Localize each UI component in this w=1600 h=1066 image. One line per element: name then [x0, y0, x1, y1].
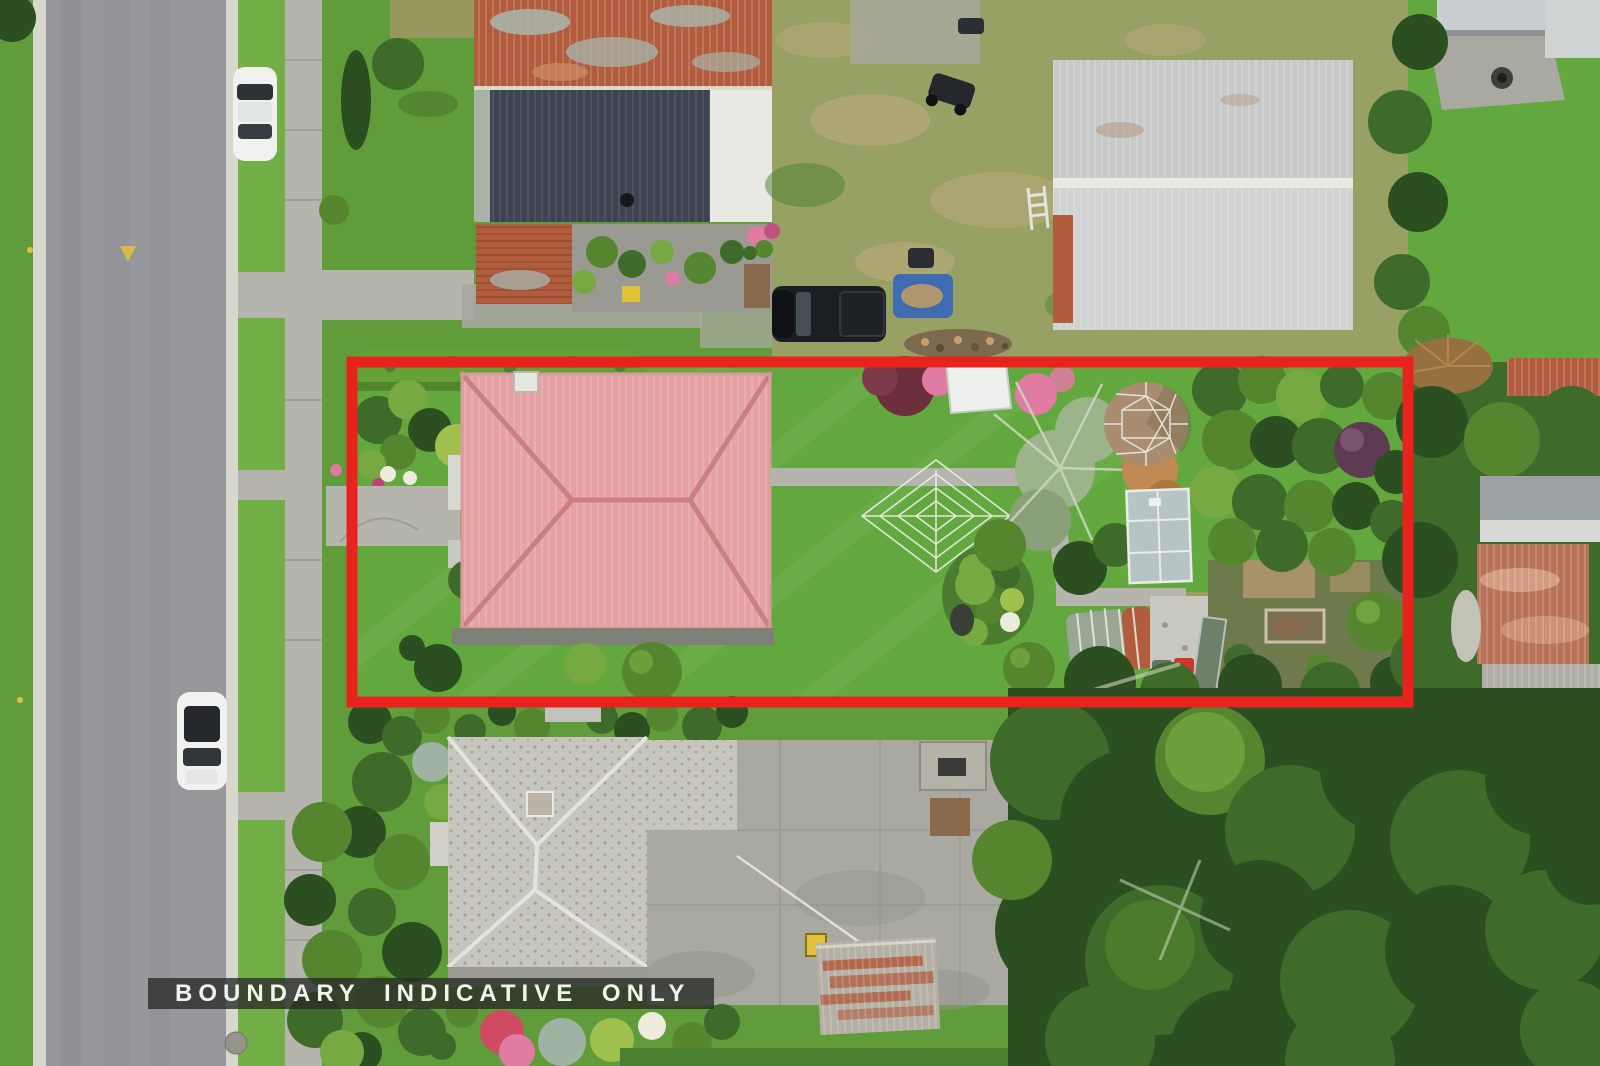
tree	[1368, 90, 1432, 154]
red-wall-strip	[1053, 215, 1073, 323]
right-kerb	[226, 0, 238, 1066]
courtyard	[572, 224, 772, 312]
glasshouse	[1126, 489, 1191, 583]
subject-house-red-roof	[452, 372, 774, 645]
pink-planter	[666, 272, 679, 285]
parked-car-middle	[177, 692, 227, 790]
black-pickup-truck	[772, 286, 886, 342]
bush	[564, 643, 606, 685]
white-roof-section	[710, 90, 772, 222]
house-edging	[452, 628, 774, 645]
tree	[1464, 402, 1540, 478]
tree	[372, 38, 424, 90]
round-bush	[1003, 642, 1055, 694]
bush	[399, 635, 425, 661]
porch	[430, 822, 448, 866]
tree	[1390, 628, 1458, 696]
rock	[950, 604, 974, 636]
tree-shadow	[398, 91, 458, 117]
flower	[330, 464, 342, 476]
wall-edge	[474, 90, 490, 222]
parked-car-top	[233, 67, 277, 161]
rust-stain	[1220, 94, 1260, 106]
boundary-banner-text: BOUNDARY INDICATIVE ONLY	[175, 980, 690, 1008]
front-paving	[326, 486, 460, 546]
right-neighbour-yard	[1368, 0, 1600, 380]
robot-mower	[908, 248, 934, 268]
firewood-pile	[904, 329, 1012, 359]
tree	[1388, 172, 1448, 232]
building-wall	[1545, 0, 1600, 58]
driveway-crossing-top	[238, 272, 322, 318]
manhole-cover	[225, 1032, 247, 1054]
tree	[1382, 522, 1458, 598]
tree	[1374, 254, 1430, 310]
bench	[744, 264, 770, 308]
grey-green-bush	[412, 742, 452, 782]
large-corrugated-shed	[1028, 60, 1353, 330]
gravel-patch	[390, 0, 474, 38]
rusty-garden-shed	[816, 937, 941, 1035]
left-kerb	[33, 0, 46, 1066]
chimney	[527, 792, 553, 816]
right-edge-strip	[1382, 334, 1600, 708]
garden-equipment	[958, 18, 984, 34]
neighbour-wall	[1480, 520, 1600, 542]
roof-vent	[620, 193, 634, 207]
dandelion	[27, 247, 33, 253]
rust-stain	[1096, 122, 1144, 138]
hedge-column	[341, 50, 371, 150]
path-crossing-middle	[238, 470, 322, 500]
lawn-strip	[620, 1048, 1010, 1066]
tyre-marks	[150, 0, 170, 1066]
chimney	[514, 372, 538, 392]
top-neighbour-house	[474, 0, 772, 312]
neighbour-roof	[1480, 476, 1600, 522]
yellow-planter	[622, 286, 640, 302]
tree	[622, 642, 682, 702]
tyre-marks	[104, 0, 130, 1066]
aerial-scene	[0, 0, 1600, 1066]
white-flowers	[1000, 612, 1020, 632]
ridge-line	[1053, 178, 1353, 188]
sand-pile	[901, 284, 943, 308]
driveway	[322, 270, 474, 320]
tyre-marks	[60, 0, 82, 1066]
white-canopy	[946, 362, 1011, 413]
tree	[1392, 14, 1448, 70]
left-grass-verge	[0, 0, 33, 1066]
forest-trees	[972, 688, 1600, 1066]
boundary-banner: BOUNDARY INDICATIVE ONLY	[148, 978, 714, 1009]
aerial-property-photo: BOUNDARY INDICATIVE ONLY	[0, 0, 1600, 1066]
bush	[319, 195, 349, 225]
dandelion	[17, 697, 23, 703]
